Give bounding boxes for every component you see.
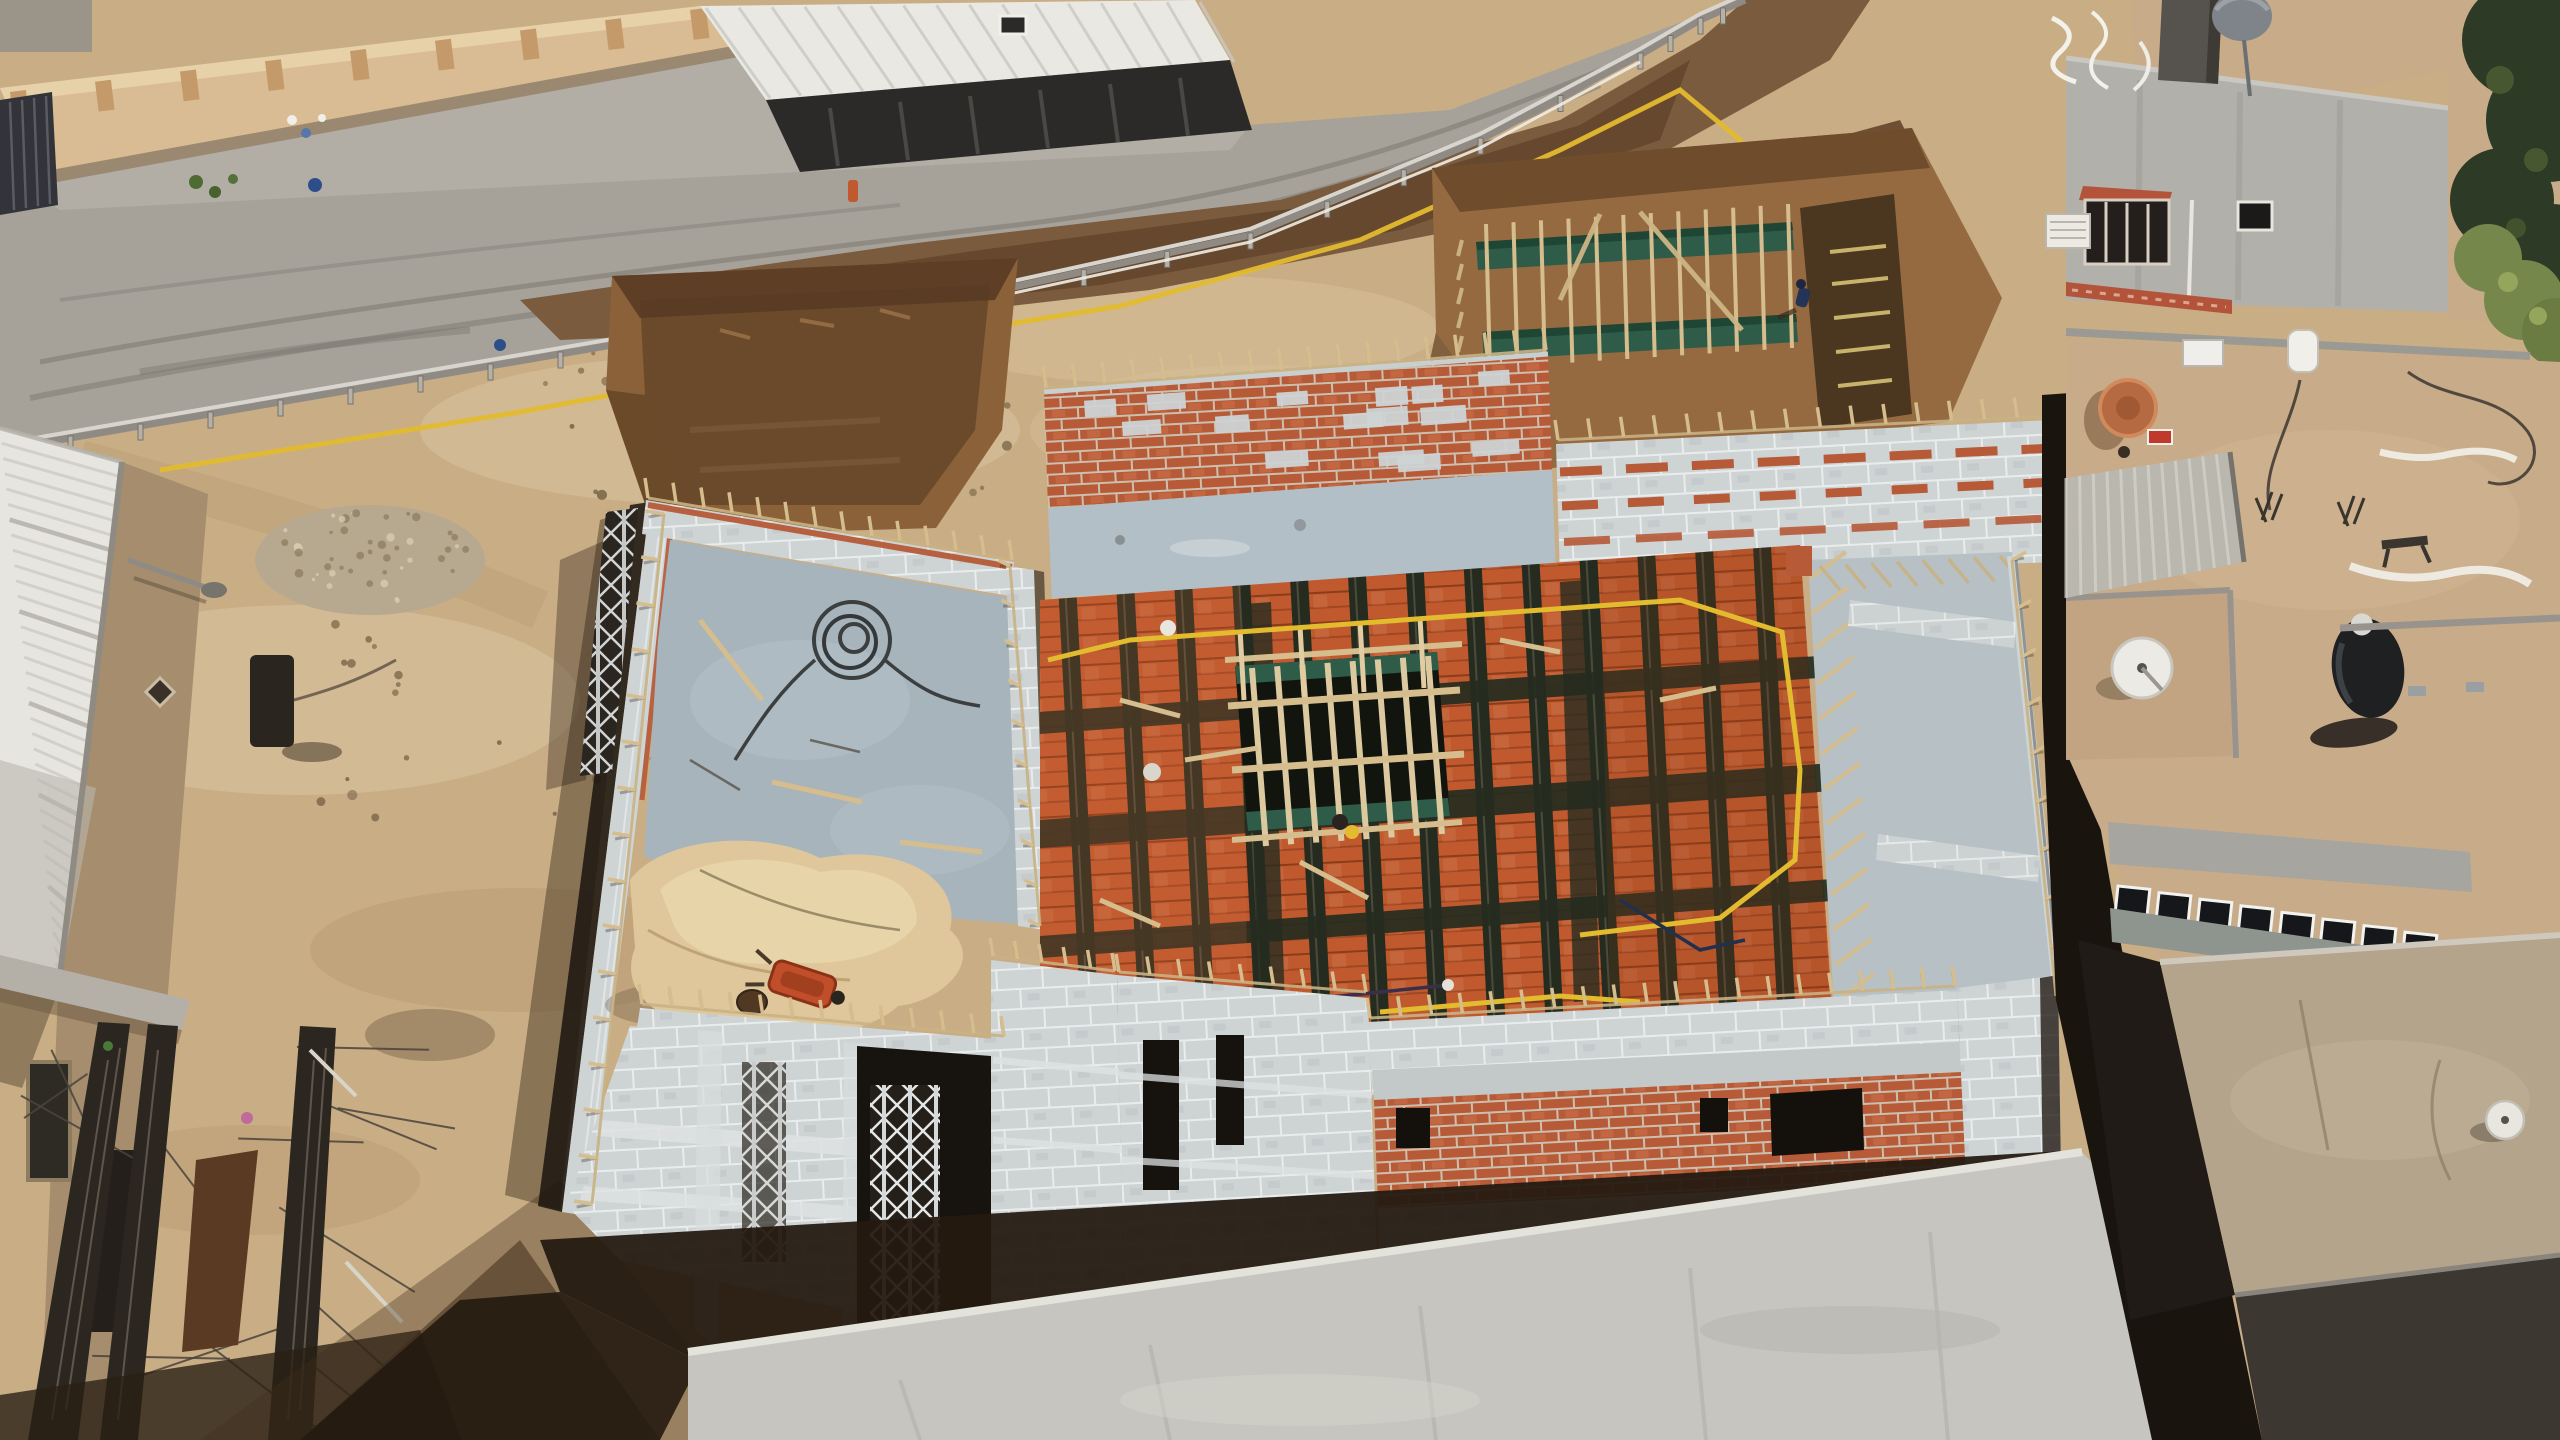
block-patch	[1375, 386, 1408, 407]
gravel-stone	[329, 557, 333, 561]
decorative-window	[2079, 186, 2172, 264]
debris-dot	[392, 689, 399, 696]
street-lamp-head	[201, 582, 227, 598]
gravel-stone	[462, 546, 469, 553]
gravel-stone	[312, 578, 315, 581]
gravel-patch	[255, 505, 485, 615]
debris-dot	[578, 367, 584, 373]
pink-object	[241, 1112, 253, 1124]
gravel-stone	[368, 550, 373, 555]
guardrail-post	[208, 412, 213, 428]
gravel-stone	[340, 526, 348, 534]
gravel-stone	[412, 513, 420, 521]
block-patch	[1276, 391, 1308, 407]
orange-peg	[848, 180, 858, 202]
gravel-stone	[407, 557, 412, 562]
gravel-stone	[352, 509, 360, 517]
debris-dot	[597, 490, 607, 500]
gravel-stone	[383, 514, 389, 520]
corrugation-line	[2080, 476, 2081, 595]
generator-machine	[250, 655, 294, 747]
guardrail-post	[1698, 18, 1703, 34]
block-patch	[1343, 412, 1384, 430]
gravel-stone	[366, 580, 373, 587]
debris-dot	[980, 486, 984, 490]
gravel-stone	[386, 533, 394, 541]
block-patch	[1420, 405, 1467, 426]
gravel-stone	[455, 544, 459, 548]
debris-dot	[497, 740, 502, 745]
block-patch	[1397, 453, 1441, 473]
litter	[318, 114, 326, 122]
gravel-stone	[451, 534, 458, 541]
debris-dot	[331, 620, 340, 629]
gravel-stone	[450, 569, 454, 573]
guardrail-post	[1721, 8, 1726, 24]
gravel-stone	[329, 531, 332, 534]
gravel-stone	[383, 554, 391, 562]
block-patch	[1411, 385, 1443, 404]
debris-dot	[396, 682, 401, 687]
blue-bottle	[494, 339, 506, 351]
gravel-stone	[406, 538, 413, 545]
block	[2408, 686, 2426, 696]
shrub	[189, 175, 203, 189]
gravel-stone	[395, 597, 399, 601]
gravel-stone	[378, 540, 387, 549]
block-patch	[1122, 419, 1162, 436]
excavation-pit	[606, 258, 1018, 536]
water-heater	[2288, 330, 2318, 372]
shrub	[209, 186, 221, 198]
guardrail-post	[138, 424, 143, 440]
debris-dot	[969, 489, 977, 497]
roof-vent	[1000, 16, 1026, 34]
white-bucket	[1160, 620, 1176, 636]
guardrail-post	[418, 376, 423, 392]
shrub	[228, 174, 238, 184]
gravel-stone	[380, 580, 388, 588]
green-object	[103, 1041, 113, 1051]
block-patch	[1265, 450, 1309, 469]
gravel-stone	[295, 569, 304, 578]
gravel-stone	[331, 514, 335, 518]
debris-dot	[371, 814, 379, 822]
debris-dot	[347, 790, 357, 800]
guardrail-post	[278, 400, 283, 416]
gravel-stone	[339, 566, 343, 570]
gravel-stone	[445, 546, 452, 553]
gravel-stone	[394, 546, 399, 551]
debris-dot	[1004, 402, 1011, 409]
gravel-stone	[368, 540, 373, 545]
scene-canvas	[0, 0, 2560, 1440]
window-opening	[1216, 1035, 1244, 1145]
sign	[2148, 430, 2172, 444]
gravel-stone	[448, 530, 453, 535]
gravel-stone	[382, 570, 387, 575]
north-wing	[1044, 354, 1556, 604]
debris-dot	[543, 381, 548, 386]
guardrail-post	[558, 352, 563, 368]
debris-dot	[341, 659, 347, 665]
litter	[301, 128, 311, 138]
window-opening	[1396, 1108, 1430, 1148]
gravel-stone	[356, 552, 364, 560]
window	[28, 1062, 70, 1180]
debris-dot	[570, 424, 575, 429]
litter	[287, 115, 297, 125]
block-patch	[1084, 399, 1117, 418]
block-patch	[1147, 392, 1187, 411]
debris-dot	[394, 671, 403, 680]
debris-dot	[316, 797, 325, 806]
right-buildings	[2046, 0, 2560, 1440]
window-opening	[1770, 1088, 1864, 1156]
gravel-stone	[327, 583, 333, 589]
gravel-stone	[438, 555, 445, 562]
gravel-stone	[281, 539, 288, 546]
debris-dot	[1002, 441, 1012, 451]
guardrail-post	[348, 388, 353, 404]
gravel-stone	[329, 570, 336, 577]
debris-dot	[404, 755, 409, 760]
window-opening	[1700, 1098, 1728, 1132]
gravel-stone	[406, 512, 410, 516]
slab-formwork	[1040, 545, 1832, 1035]
gravel-stone	[324, 563, 331, 570]
white-bucket	[1442, 979, 1454, 991]
blue-barrel	[308, 178, 322, 192]
gravel-stone	[400, 566, 404, 570]
debris-dot	[345, 777, 349, 781]
door-opening	[1143, 1040, 1179, 1190]
gravel-stone	[316, 573, 319, 576]
gravel-stone	[339, 516, 346, 523]
guardrail-post	[1668, 36, 1673, 52]
debris-dot	[365, 636, 372, 643]
vent-window	[2238, 202, 2272, 230]
gravel-stone	[348, 568, 353, 573]
aerial-photo	[0, 0, 2560, 1440]
block-patch	[1215, 414, 1250, 433]
debris-dot	[347, 659, 356, 668]
debris-dot	[553, 812, 557, 816]
guardrail-post	[488, 364, 493, 380]
block	[2466, 682, 2484, 692]
block-patch	[1478, 370, 1510, 387]
gravel-stone	[283, 528, 287, 532]
gravel-stone	[294, 549, 302, 557]
debris-dot	[372, 644, 377, 649]
ac-unit	[2183, 340, 2223, 366]
corner-building-roof	[0, 0, 92, 52]
brick-column	[1786, 546, 1812, 576]
white-bucket	[1143, 763, 1161, 781]
